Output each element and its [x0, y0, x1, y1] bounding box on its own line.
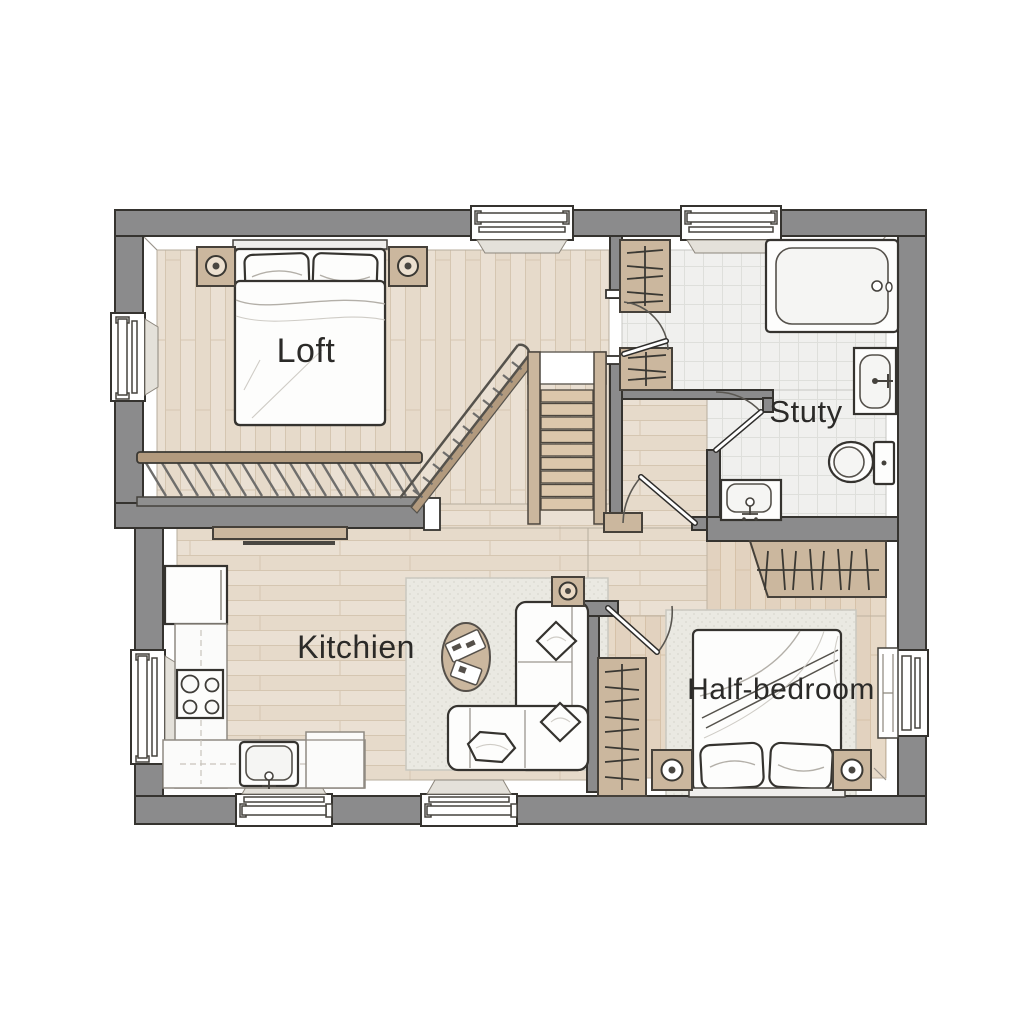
pillow [700, 742, 764, 789]
small-sink-icon [721, 480, 781, 521]
window-right-bedroom [878, 648, 928, 738]
closet-door-cap-top [606, 290, 620, 298]
wall-hall-top [622, 390, 773, 399]
bed-headboard [233, 240, 387, 249]
stair-stringer-right [594, 352, 606, 524]
coffee-table-icon [442, 623, 490, 691]
bathtub-icon [766, 240, 898, 332]
wall-shelf-bar [243, 541, 335, 545]
room-label-study: Stuty [769, 394, 842, 429]
closet-icon-bedroom-left [598, 658, 646, 796]
window-top-a [471, 206, 573, 253]
kitchen-sink-icon [240, 742, 298, 789]
loft-wall-endcap [424, 498, 440, 530]
stair-stringer-left [528, 352, 540, 524]
railing-handrail [137, 452, 422, 463]
nightstand-lamp-right [389, 247, 427, 286]
closet-icon-study-1 [620, 240, 670, 312]
fridge-icon [165, 566, 227, 624]
stove-icon [177, 670, 223, 718]
nightstand-lamp-left [197, 247, 235, 286]
nightstand-lamp-left [652, 750, 692, 790]
window-bottom-b [421, 780, 517, 826]
room-label-kitchen: Kitchien [297, 629, 415, 665]
bed-footboard [689, 788, 845, 797]
wall-shelf [213, 527, 347, 539]
stair-treads [541, 390, 593, 510]
room-label-half-bedroom: Half-bedroom [687, 673, 875, 706]
closet-door-cap-bottom [606, 356, 620, 364]
closet-icon-bedroom-top [750, 541, 886, 597]
floor-plan: Loft [0, 0, 1024, 1024]
floor-plan-svg: Loft [0, 0, 1024, 1024]
stairs-icon [528, 352, 606, 524]
window-left-loft [111, 313, 158, 401]
toilet-icon [829, 442, 894, 484]
hall-floor [622, 398, 707, 528]
corner-lamp-icon [552, 577, 584, 606]
room-label-loft: Loft [277, 332, 336, 370]
nightstand-lamp-right [833, 750, 871, 790]
vanity-sink-icon [854, 348, 896, 414]
pillow [769, 742, 833, 789]
